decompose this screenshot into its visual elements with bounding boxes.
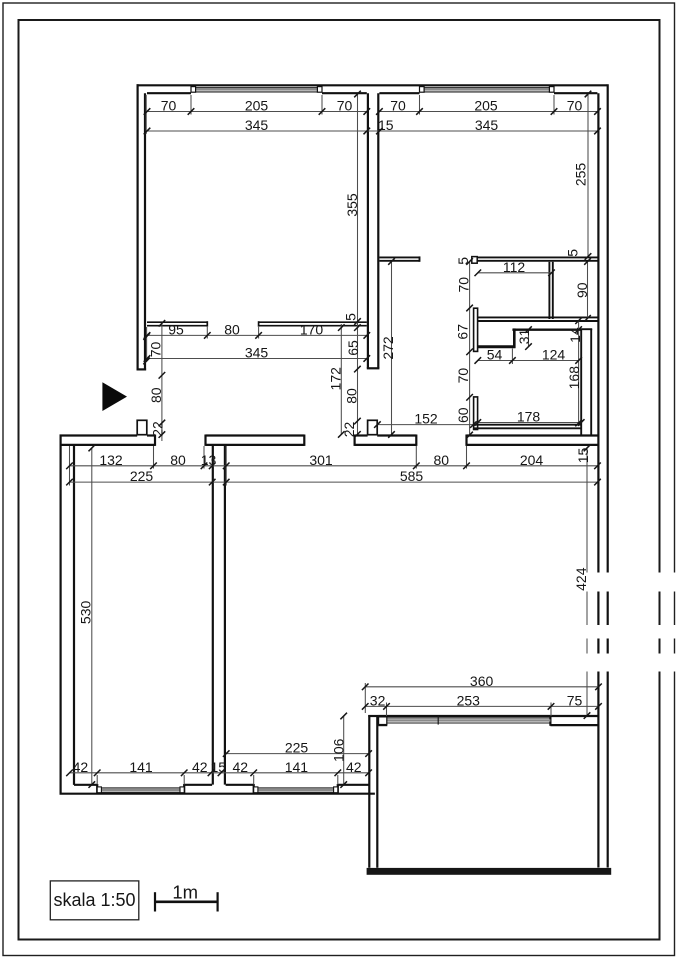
svg-text:15: 15 — [378, 117, 394, 133]
svg-text:272: 272 — [380, 336, 396, 360]
svg-text:42: 42 — [192, 759, 208, 775]
svg-text:80: 80 — [148, 387, 164, 403]
svg-text:90: 90 — [574, 282, 590, 298]
svg-text:70: 70 — [161, 98, 177, 114]
svg-text:80: 80 — [224, 321, 240, 337]
svg-text:360: 360 — [470, 673, 494, 689]
svg-text:13: 13 — [201, 452, 217, 468]
svg-text:170: 170 — [300, 321, 324, 337]
svg-text:1m: 1m — [172, 881, 198, 902]
svg-text:205: 205 — [245, 98, 269, 114]
svg-text:112: 112 — [503, 259, 526, 275]
svg-text:80: 80 — [170, 452, 186, 468]
svg-text:70: 70 — [567, 98, 583, 114]
svg-text:106: 106 — [330, 738, 346, 762]
svg-text:152: 152 — [414, 411, 438, 427]
svg-text:172: 172 — [327, 367, 343, 391]
svg-text:80: 80 — [344, 388, 360, 404]
svg-text:60: 60 — [455, 407, 471, 423]
svg-text:42: 42 — [73, 759, 89, 775]
svg-text:67: 67 — [454, 324, 470, 340]
svg-text:141: 141 — [285, 759, 309, 775]
svg-text:14: 14 — [567, 327, 583, 343]
svg-text:5: 5 — [342, 313, 358, 321]
svg-text:225: 225 — [285, 740, 309, 756]
svg-text:345: 345 — [245, 117, 269, 133]
svg-text:31: 31 — [516, 329, 532, 345]
svg-text:65: 65 — [345, 340, 361, 356]
svg-text:75: 75 — [567, 692, 583, 708]
svg-text:22: 22 — [150, 421, 166, 437]
svg-text:80: 80 — [434, 452, 450, 468]
svg-text:15: 15 — [211, 759, 227, 775]
svg-text:345: 345 — [475, 117, 499, 133]
svg-text:70: 70 — [455, 368, 471, 384]
svg-text:95: 95 — [168, 321, 184, 337]
svg-text:42: 42 — [346, 759, 362, 775]
svg-text:5: 5 — [455, 257, 471, 265]
svg-text:424: 424 — [573, 567, 589, 591]
svg-text:skala 1:50: skala 1:50 — [53, 890, 135, 910]
svg-text:54: 54 — [487, 347, 503, 363]
svg-text:225: 225 — [130, 468, 154, 484]
svg-text:70: 70 — [337, 98, 353, 114]
svg-text:132: 132 — [99, 452, 123, 468]
svg-text:530: 530 — [78, 601, 94, 625]
svg-text:32: 32 — [370, 692, 386, 708]
svg-text:204: 204 — [520, 452, 544, 468]
svg-text:255: 255 — [573, 163, 589, 187]
svg-text:168: 168 — [566, 366, 582, 390]
svg-text:301: 301 — [309, 452, 333, 468]
svg-text:355: 355 — [344, 193, 360, 217]
svg-text:178: 178 — [517, 409, 541, 425]
svg-text:124: 124 — [542, 347, 566, 363]
svg-text:585: 585 — [400, 468, 424, 484]
svg-text:205: 205 — [474, 98, 498, 114]
svg-text:70: 70 — [148, 342, 164, 358]
svg-text:141: 141 — [129, 759, 153, 775]
svg-text:70: 70 — [390, 98, 406, 114]
svg-text:253: 253 — [457, 692, 481, 708]
svg-text:22: 22 — [341, 422, 357, 438]
svg-text:345: 345 — [245, 345, 269, 361]
svg-text:42: 42 — [233, 759, 249, 775]
svg-text:5: 5 — [565, 249, 581, 257]
svg-text:70: 70 — [456, 277, 472, 293]
svg-text:15: 15 — [575, 448, 591, 464]
